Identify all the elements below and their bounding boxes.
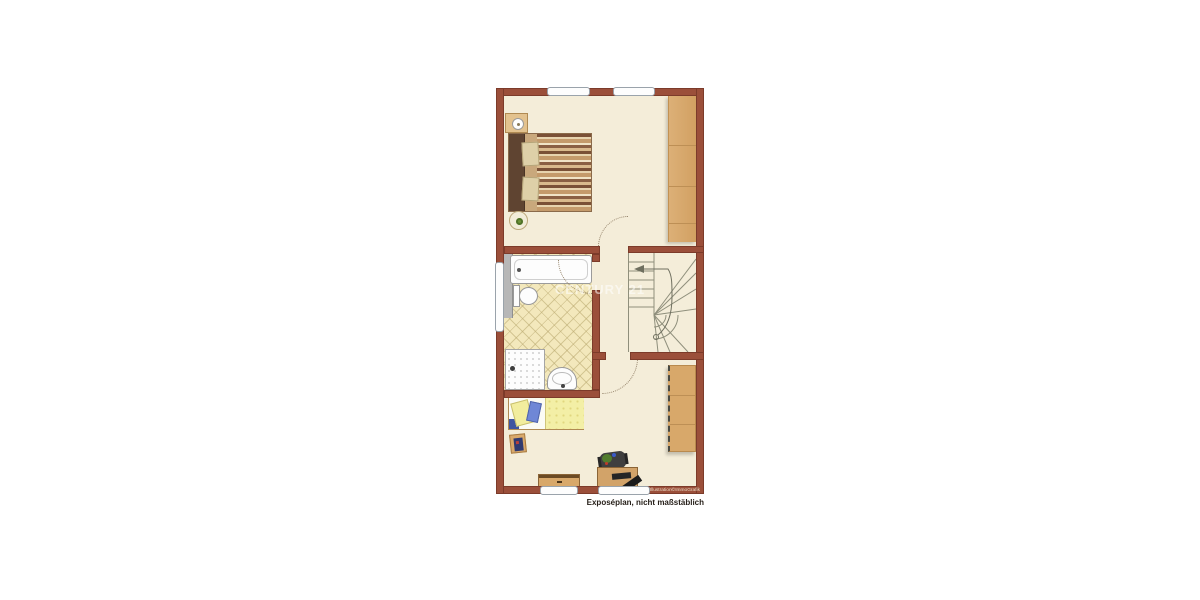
wall-bathroom-bottom xyxy=(504,390,600,398)
window-bottom-left xyxy=(540,486,578,495)
wall-right xyxy=(696,88,704,494)
wall-top xyxy=(496,88,704,96)
window-bathroom xyxy=(495,262,504,332)
shelf-unit xyxy=(668,365,696,452)
stair-direction-arrow-icon xyxy=(634,265,644,273)
wall-bathroom-right xyxy=(592,290,600,390)
book xyxy=(509,433,527,454)
sink xyxy=(547,367,577,390)
sideboard-handle xyxy=(557,481,562,483)
book-cover xyxy=(513,438,523,452)
blue-pillow xyxy=(526,401,542,423)
nightstand xyxy=(505,113,528,133)
plan-caption: Exposéplan, nicht maßstäblich xyxy=(496,498,704,507)
floor-plan: CENTURY 21 Illustration©ImmoGrafik Expos… xyxy=(496,88,704,494)
tap-icon xyxy=(561,384,565,388)
striped-duvet xyxy=(537,134,591,211)
illustration-credit: Illustration©ImmoGrafik xyxy=(649,487,700,493)
pillow xyxy=(521,177,539,202)
wall-stair-top xyxy=(628,246,704,253)
wall-stair-bottom xyxy=(630,352,704,360)
wall-bathroom-top xyxy=(504,246,600,254)
shelf-division xyxy=(670,395,695,396)
round-plant-table xyxy=(509,211,528,230)
window-bottom-right xyxy=(598,486,650,495)
desk-plant-icon xyxy=(602,453,616,465)
window-top-left xyxy=(547,87,590,96)
keyboard-icon xyxy=(612,472,631,480)
pillow xyxy=(521,142,539,167)
lamp-icon xyxy=(512,118,524,130)
drain-icon xyxy=(510,366,515,371)
sideboard-top-edge xyxy=(539,475,579,478)
plant-icon xyxy=(516,218,523,225)
watermark: CENTURY 21 xyxy=(532,282,668,297)
winder-staircase xyxy=(628,253,696,352)
window-top-right xyxy=(613,87,655,96)
shelf-division xyxy=(670,424,695,425)
bedroom-wardrobe xyxy=(668,96,696,242)
wardrobe-division xyxy=(669,186,696,187)
shower xyxy=(505,349,545,390)
wall-bathroom-right-stub xyxy=(592,254,600,262)
double-bed xyxy=(508,133,592,212)
wardrobe-division xyxy=(669,145,696,146)
wall-door-jamb xyxy=(592,352,606,360)
page-canvas: CENTURY 21 Illustration©ImmoGrafik Expos… xyxy=(0,0,1200,600)
yellow-duvet xyxy=(545,398,584,429)
wardrobe-division xyxy=(669,223,696,224)
single-bed xyxy=(508,397,584,430)
faucet-icon xyxy=(517,268,521,272)
